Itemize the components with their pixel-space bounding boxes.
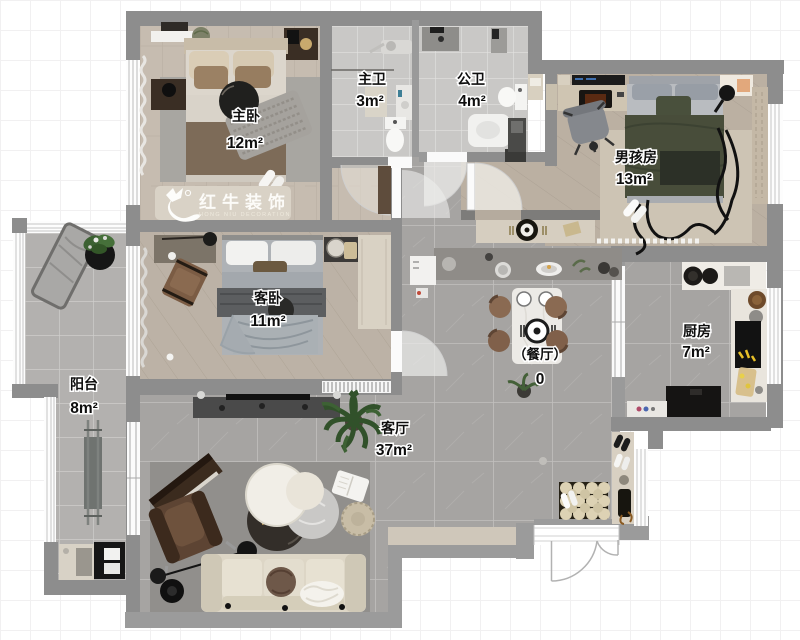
svg-text:8m²: 8m² (70, 400, 98, 417)
svg-text:客厅: 客厅 (380, 420, 409, 436)
svg-text:37m²: 37m² (376, 442, 412, 459)
svg-text:公卫: 公卫 (457, 71, 485, 87)
svg-text:厨房: 厨房 (683, 323, 711, 339)
svg-text:红牛装饰: 红牛装饰 (199, 192, 291, 212)
svg-text:HONG NIU DECORATION: HONG NIU DECORATION (199, 212, 291, 218)
svg-text:客卧: 客卧 (253, 290, 282, 306)
svg-text:阳台: 阳台 (70, 376, 98, 392)
svg-text:0: 0 (536, 371, 545, 388)
svg-text:11m²: 11m² (250, 313, 285, 330)
svg-text:男孩房: 男孩房 (615, 149, 657, 165)
svg-text:4m²: 4m² (458, 93, 486, 110)
svg-text:主卧: 主卧 (232, 108, 260, 124)
svg-text:12m²: 12m² (227, 135, 263, 152)
svg-text:7m²: 7m² (682, 344, 710, 361)
svg-text:主卫: 主卫 (358, 71, 386, 87)
svg-text:（餐厅）: （餐厅） (513, 346, 567, 362)
svg-text:13m²: 13m² (616, 171, 652, 188)
svg-text:3m²: 3m² (356, 93, 384, 110)
